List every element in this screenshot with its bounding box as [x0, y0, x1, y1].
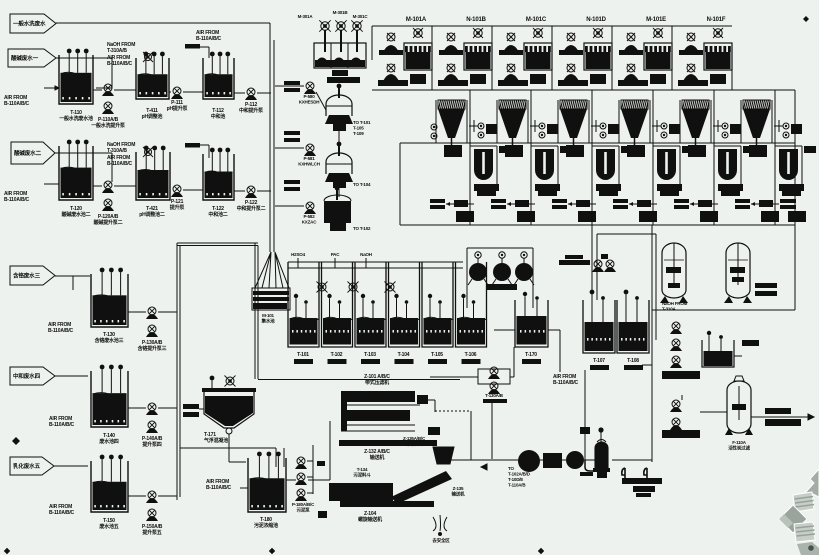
svg-text:AIR FROMB-110A/B/C: AIR FROMB-110A/B/C: [206, 479, 232, 491]
svg-text:AIR FROMB-110A/B/C: AIR FROMB-110A/B/C: [4, 95, 30, 107]
svg-text:P-140A/B提升泵四: P-140A/B提升泵四: [142, 436, 163, 448]
svg-text:T-103: T-103: [364, 352, 376, 358]
svg-text:P-150A/B提升泵五: P-150A/B提升泵五: [142, 524, 163, 536]
svg-text:M-101集水池: M-101集水池: [261, 313, 276, 325]
svg-text:AIR FROMB-110A/B/C: AIR FROMB-110A/B/C: [49, 504, 75, 516]
svg-text:PAC: PAC: [331, 252, 341, 257]
svg-text:M-101A: M-101A: [406, 17, 427, 23]
svg-text:AIR FROMB-110A/B/C: AIR FROMB-110A/B/C: [196, 30, 222, 42]
svg-text:一般水洗废水: 一般水洗废水: [13, 20, 46, 28]
svg-text:Z-135A/B/C污泥料斗: Z-135A/B/C污泥料斗: [403, 436, 426, 448]
svg-text:T-130A/B: T-130A/B: [485, 393, 504, 398]
svg-text:T-170: T-170: [525, 352, 537, 358]
svg-text:T-102: T-102: [331, 352, 343, 358]
svg-text:M-101C: M-101C: [526, 17, 547, 23]
svg-text:AIR FROMB-110A/B/C: AIR FROMB-110A/B/C: [49, 416, 75, 428]
svg-text:TO T-102: TO T-102: [353, 226, 371, 231]
svg-text:Z-101 A/B/C带式压滤机: Z-101 A/B/C带式压滤机: [364, 374, 390, 386]
svg-text:AIR FROMB-110A/B/C: AIR FROMB-110A/B/C: [48, 322, 74, 334]
svg-text:酸碱废水二: 酸碱废水二: [14, 149, 42, 157]
svg-text:N-101B: N-101B: [466, 17, 486, 23]
svg-text:Z-135输送机: Z-135输送机: [452, 486, 466, 498]
svg-text:N-101D: N-101D: [586, 17, 606, 23]
svg-text:M-301C: M-301C: [353, 14, 369, 19]
svg-text:中和废水四: 中和废水四: [13, 372, 41, 380]
svg-text:乳化废水五: 乳化废水五: [13, 462, 41, 470]
svg-text:P-130A/B含铬提升泵三: P-130A/B含铬提升泵三: [137, 340, 167, 352]
svg-text:N-101F: N-101F: [707, 17, 726, 23]
svg-text:T-105: T-105: [431, 352, 443, 358]
svg-text:AIR FROMB-110A/B/C: AIR FROMB-110A/B/C: [107, 155, 133, 167]
svg-text:T-101: T-101: [297, 352, 309, 358]
svg-text:AIR FROMB-110A/B/C: AIR FROMB-110A/B/C: [4, 191, 30, 203]
svg-text:P-121提升泵: P-121提升泵: [170, 199, 186, 211]
svg-text:T-112中和池: T-112中和池: [211, 108, 226, 120]
svg-text:H2SO4: H2SO4: [291, 252, 305, 257]
svg-text:T-106: T-106: [465, 352, 477, 358]
svg-text:T-107: T-107: [593, 358, 605, 364]
svg-text:M-101E: M-101E: [646, 17, 666, 23]
svg-text:T-108: T-108: [627, 358, 639, 364]
svg-text:TO T-104: TO T-104: [353, 182, 371, 187]
svg-text:含铬废水三: 含铬废水三: [13, 272, 41, 280]
svg-text:酸碱废水一: 酸碱废水一: [11, 54, 39, 62]
svg-text:M-301A: M-301A: [298, 14, 314, 19]
svg-text:AIR FROMB-110A/B/C: AIR FROMB-110A/B/C: [553, 374, 579, 386]
svg-text:NaOH: NaOH: [360, 252, 372, 257]
svg-text:去安全区: 去安全区: [432, 537, 450, 544]
svg-text:M-301B: M-301B: [333, 10, 349, 15]
svg-text:T-104: T-104: [398, 352, 410, 358]
svg-text:AIR FROMB-110A/B/C: AIR FROMB-110A/B/C: [107, 55, 133, 67]
